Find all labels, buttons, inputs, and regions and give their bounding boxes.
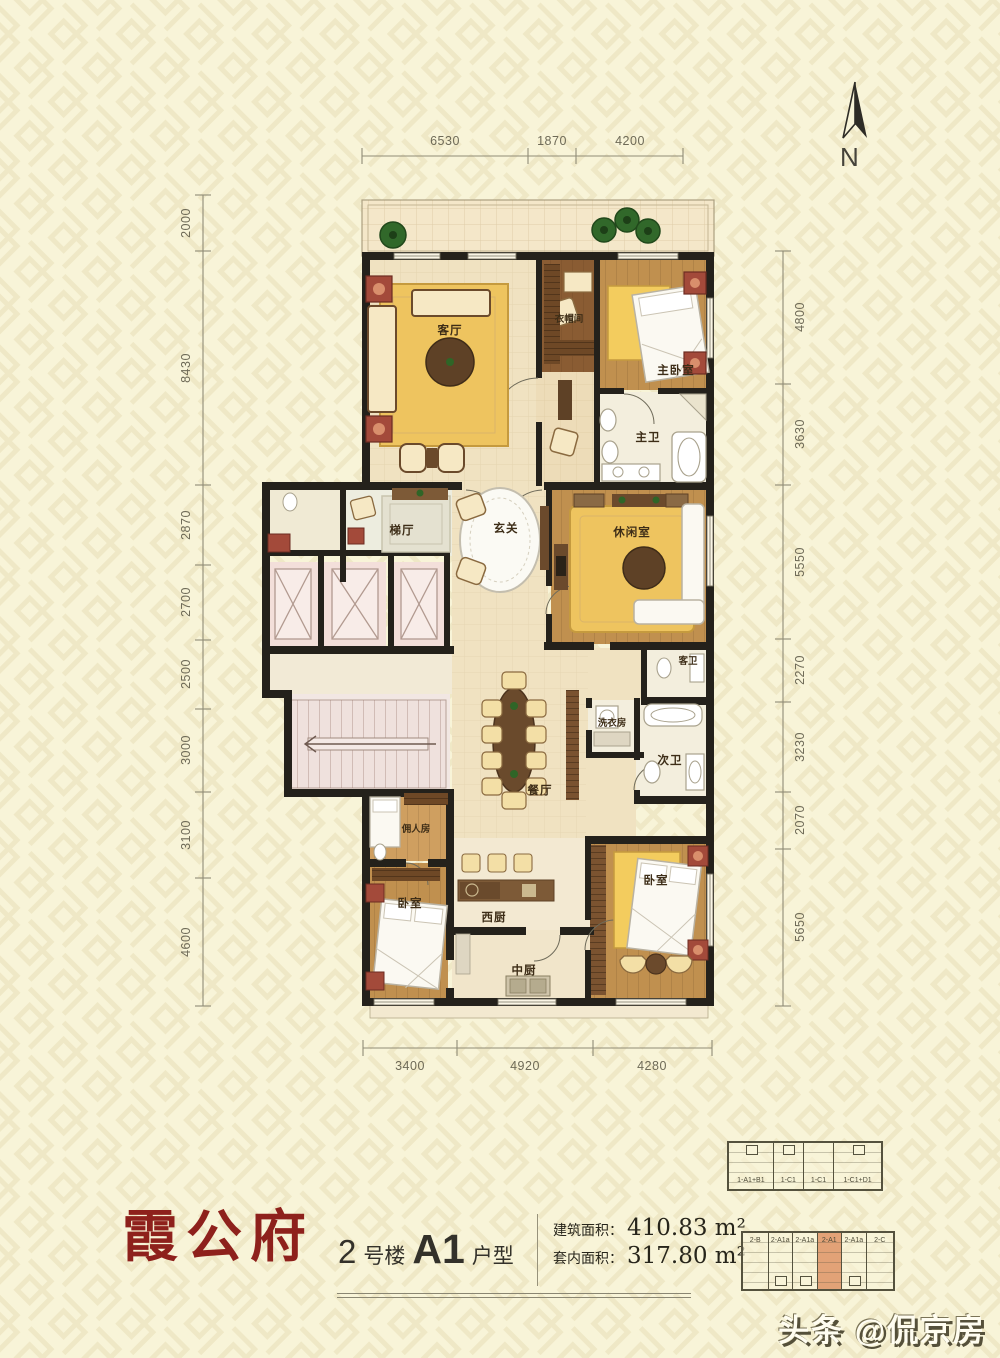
keyplan-core-icon (849, 1276, 861, 1286)
keyplan1-unit: 1-A1+B1 (729, 1143, 774, 1189)
title-divider (537, 1214, 538, 1286)
dim-left-2: 8430 (179, 353, 193, 383)
keyplan-core-icon (775, 1276, 787, 1286)
room-label-kitchen-mid: 中厨 (512, 962, 537, 978)
gross-area-value: 410.83 m² (627, 1215, 746, 1241)
room-label-bedroom-right: 卧室 (644, 872, 669, 888)
room-label-guest-bath: 客卫 (678, 653, 697, 667)
dim-right-5: 3230 (793, 732, 807, 762)
keyplan-building-2: 2-B 2-A1a 2-A1a 2-A1 2-A1a 2-C (741, 1231, 895, 1291)
dim-top-2: 1870 (537, 134, 567, 148)
keyplan-core-icon (783, 1145, 795, 1155)
dim-top-3: 4200 (615, 134, 645, 148)
keyplan2-unit: 2-B (743, 1233, 769, 1289)
dim-bottom-1: 3400 (395, 1059, 425, 1073)
unit-title: 2 号楼 A1 户型 (338, 1226, 514, 1273)
room-label-cloak: 衣帽间 (555, 311, 584, 325)
dim-left-1: 2000 (179, 208, 193, 238)
keyplan2-unit: 2-A1a (842, 1233, 867, 1289)
dim-left-6: 3000 (179, 735, 193, 765)
room-label-kitchen-west: 西厨 (482, 909, 507, 925)
keyplan1-unit: 1-C1+D1 (834, 1143, 881, 1189)
keyplan-unit-label: 1-C1 (781, 1177, 796, 1184)
room-label-dining: 餐厅 (528, 782, 553, 798)
dim-right-3: 5550 (793, 547, 807, 577)
room-label-master-bath: 主卫 (636, 429, 661, 445)
room-label-master: 主卧室 (657, 362, 695, 378)
keyplan-building-1: 1-A1+B1 1-C1 1-C1 1-C1+D1 (727, 1141, 883, 1191)
lounge-furniture (554, 494, 704, 632)
keyplan-core-icon (853, 1145, 865, 1155)
dim-left-7: 3100 (179, 820, 193, 850)
keyplan-unit-label: 1-C1+D1 (843, 1177, 871, 1184)
keyplan1-unit: 1-C1 (804, 1143, 834, 1189)
keyplan2-unit: 2-A1a (793, 1233, 818, 1289)
keyplan-unit-label: 2-C (874, 1237, 885, 1244)
unit-suffix: 户型 (472, 1240, 514, 1270)
gross-area-row: 建筑面积： 410.83 m² (553, 1215, 746, 1241)
staircase (290, 700, 446, 788)
watermark: 头条 @侃京房 (778, 1305, 986, 1350)
dim-bottom-3: 4280 (637, 1059, 667, 1073)
elevator-shafts (268, 562, 444, 646)
keyplan1-unit: 1-C1 (774, 1143, 804, 1189)
dim-right-4: 2270 (793, 655, 807, 685)
keyplan2-unit: 2-C (867, 1233, 893, 1289)
floorplan-page: N 6530 1870 4200 3400 4920 4280 2000 843… (0, 0, 1000, 1358)
gross-area-label: 建筑面积： (553, 1220, 623, 1240)
dim-left-4: 2700 (179, 587, 193, 617)
room-label-bedroom-left: 卧室 (398, 895, 423, 911)
building-number: 2 (338, 1233, 356, 1271)
net-area-label: 套内面积： (553, 1248, 623, 1268)
keyplan-unit-label: 1-A1+B1 (737, 1177, 764, 1184)
dim-left-8: 4600 (179, 927, 193, 957)
keyplan-core-icon (746, 1145, 758, 1155)
area-info: 建筑面积： 410.83 m² 套内面积： 317.80 m² (553, 1215, 746, 1271)
dim-right-6: 2070 (793, 805, 807, 835)
building-suffix: 号楼 (363, 1240, 405, 1270)
title-underline (337, 1293, 691, 1298)
keyplan2-unit: 2-A1a (769, 1233, 794, 1289)
keyplan-unit-label: 2-A1a (771, 1237, 790, 1244)
living-furniture (366, 276, 508, 472)
keyplan-core-icon (800, 1276, 812, 1286)
dim-left-3: 2870 (179, 510, 193, 540)
net-area-value: 317.80 m² (627, 1243, 746, 1269)
dim-right-1: 4800 (793, 302, 807, 332)
keyplan-unit-label: 2-B (750, 1237, 761, 1244)
room-label-maid: 佣人房 (402, 821, 431, 835)
keyplan-unit-label: 2-A1 (822, 1237, 837, 1244)
dim-bottom-2: 4920 (510, 1059, 540, 1073)
project-logo: 霞公府 (122, 1204, 332, 1271)
room-label-second-bath: 次卫 (658, 752, 683, 768)
keyplan-unit-label: 2-A1a (844, 1237, 863, 1244)
keyplan-unit-label: 2-A1a (795, 1237, 814, 1244)
room-label-foyer: 玄关 (494, 520, 519, 536)
room-label-living: 客厅 (438, 322, 463, 338)
dim-right-7: 5650 (793, 912, 807, 942)
dim-right-2: 3630 (793, 419, 807, 449)
north-arrow-icon (828, 78, 884, 148)
dim-top-1: 6530 (430, 134, 460, 148)
unit-code: A1 (412, 1226, 464, 1273)
room-label-lift-hall: 梯厅 (390, 522, 415, 538)
room-label-lounge: 休闲室 (613, 524, 651, 540)
dim-left-5: 2500 (179, 659, 193, 689)
room-label-laundry: 洗衣房 (598, 715, 627, 729)
net-area-row: 套内面积： 317.80 m² (553, 1243, 746, 1269)
keyplan2-unit-highlighted: 2-A1 (818, 1233, 843, 1289)
keyplan-unit-label: 1-C1 (811, 1177, 826, 1184)
north-label: N (840, 142, 859, 173)
